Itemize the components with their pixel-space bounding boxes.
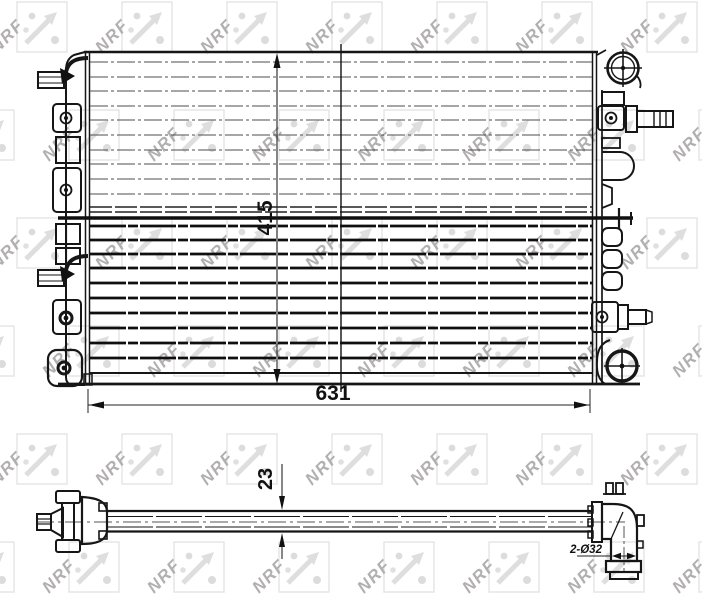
dim-height-label: 415 bbox=[254, 200, 277, 235]
technical-drawing-svg: NRF NRF NRF bbox=[0, 0, 702, 600]
drain-cap-shape bbox=[620, 364, 625, 369]
dim-thickness-label: 23 bbox=[255, 468, 277, 490]
dim-width-label: 631 bbox=[315, 382, 350, 405]
mounting-bracket-mid-shape bbox=[64, 188, 68, 192]
dim-ports-label: 2-Ø32 bbox=[569, 544, 603, 556]
mounting-bracket-lower-shape bbox=[64, 316, 69, 321]
bracket-upper-right-shape bbox=[609, 116, 613, 120]
filler-cap-shape bbox=[621, 66, 625, 70]
mounting-bracket-top-shape bbox=[64, 116, 68, 120]
mounting-bracket-bottom-shape bbox=[62, 366, 67, 371]
stub-lower-right-shape bbox=[600, 315, 604, 319]
radiator-technical-drawing-page: NRF NRF NRF bbox=[0, 0, 702, 600]
